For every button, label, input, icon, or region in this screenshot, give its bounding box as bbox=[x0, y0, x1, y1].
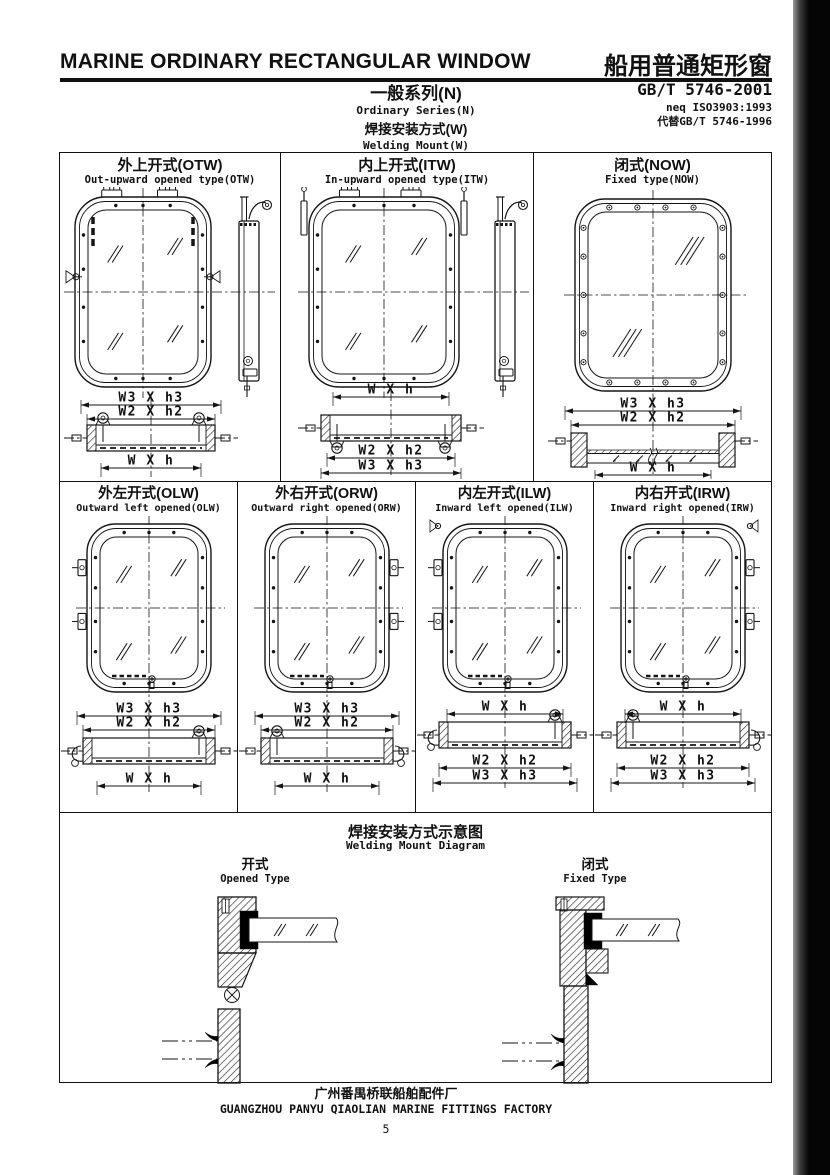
mount-label-en: Welding Mount(W) bbox=[60, 140, 772, 151]
weld-fixed-section-drawing bbox=[500, 891, 690, 1091]
welding-diagram-row: 焊接安装方式示意图 Welding Mount Diagram 开式 Opene… bbox=[60, 813, 771, 1082]
panel-title-zh: 外上开式(OTW) bbox=[60, 153, 280, 175]
panel-title-en: Fixed type(NOW) bbox=[534, 175, 771, 187]
page-title-zh: 船用普通矩形窗 bbox=[60, 46, 772, 81]
fixed-type-en: Fixed Type bbox=[495, 873, 695, 885]
panel-irw: 内右开式(IRW) Inward right opened(IRW) W X h… bbox=[594, 482, 771, 812]
panel-itw: 内上开式(ITW) In-upward opened type(ITW) W X… bbox=[281, 153, 534, 481]
weld-open-section-drawing bbox=[160, 891, 350, 1091]
footer: 广州番禺桥联船舶配件厂 GUANGZHOU PANYU QIAOLIAN MAR… bbox=[0, 1087, 772, 1116]
panel-title-zh: 内左开式(ILW) bbox=[416, 482, 593, 503]
panel-orw: 外右开式(ORW) Outward right opened(ORW) W3 X… bbox=[238, 482, 416, 812]
drawing-ilw: W X hW2 X h2W3 X h3 bbox=[416, 516, 593, 812]
drawing-now: W3 X h3W2 X h2W X h bbox=[534, 187, 771, 479]
drawing-table: 外上开式(OTW) Out-upward opened type(OTW) W3… bbox=[59, 152, 772, 1083]
panel-title-zh: 闭式(NOW) bbox=[534, 153, 771, 175]
fixed-type-zh: 闭式 bbox=[495, 857, 695, 873]
standard-neq: neq ISO3903:1993 bbox=[60, 102, 772, 116]
panel-now: 闭式(NOW) Fixed type(NOW) W3 X h3W2 X h2W … bbox=[534, 153, 771, 481]
panel-title-en: Inward right opened(IRW) bbox=[594, 503, 771, 514]
panel-title-en: Out-upward opened type(OTW) bbox=[60, 175, 280, 187]
standard-number: GB/T 5746-2001 bbox=[60, 82, 772, 102]
welding-title-en: Welding Mount Diagram bbox=[60, 839, 771, 852]
panel-ilw: 内左开式(ILW) Inward left opened(ILW) W X hW… bbox=[416, 482, 594, 812]
panel-title-zh: 内上开式(ITW) bbox=[281, 153, 533, 175]
table-row-1: 外上开式(OTW) Out-upward opened type(OTW) W3… bbox=[60, 153, 771, 482]
opened-type-label: 开式 Opened Type bbox=[155, 857, 355, 885]
drawing-otw: W3 X h3W2 X h2W X h bbox=[60, 187, 280, 479]
factory-name-en: GUANGZHOU PANYU QIAOLIAN MARINE FITTINGS… bbox=[0, 1104, 772, 1116]
drawing-olw: W3 X h3W2 X h2W X h bbox=[60, 516, 237, 812]
drawing-irw: W X hW2 X h2W3 X h3 bbox=[594, 516, 771, 812]
opened-type-en: Opened Type bbox=[155, 873, 355, 885]
welding-panel: 焊接安装方式示意图 Welding Mount Diagram 开式 Opene… bbox=[60, 813, 771, 1082]
opened-type-zh: 开式 bbox=[155, 857, 355, 873]
panel-title-zh: 内右开式(IRW) bbox=[594, 482, 771, 503]
scan-edge-shadow bbox=[793, 0, 830, 1175]
panel-title-en: In-upward opened type(ITW) bbox=[281, 175, 533, 187]
panel-title-en: Inward left opened(ILW) bbox=[416, 503, 593, 514]
table-row-2: 外左开式(OLW) Outward left opened(OLW) W3 X … bbox=[60, 482, 771, 813]
fixed-type-label: 闭式 Fixed Type bbox=[495, 857, 695, 885]
standard-replaces: 代替GB/T 5746-1996 bbox=[60, 116, 772, 130]
panel-title-zh: 外左开式(OLW) bbox=[60, 482, 237, 503]
catalog-page: MARINE ORDINARY RECTANGULAR WINDOW 船用普通矩… bbox=[0, 0, 830, 1175]
drawing-orw: W3 X h3W2 X h2W X h bbox=[238, 516, 415, 812]
panel-title-zh: 外右开式(ORW) bbox=[238, 482, 415, 503]
panel-otw: 外上开式(OTW) Out-upward opened type(OTW) W3… bbox=[60, 153, 281, 481]
panel-olw: 外左开式(OLW) Outward left opened(OLW) W3 X … bbox=[60, 482, 238, 812]
panel-title-en: Outward left opened(OLW) bbox=[60, 503, 237, 514]
panel-title-en: Outward right opened(ORW) bbox=[238, 503, 415, 514]
page-number: 5 bbox=[0, 1122, 772, 1136]
drawing-itw: W X hW2 X h2W3 X h3 bbox=[281, 187, 533, 479]
standard-block: GB/T 5746-2001 neq ISO3903:1993 代替GB/T 5… bbox=[60, 82, 772, 130]
